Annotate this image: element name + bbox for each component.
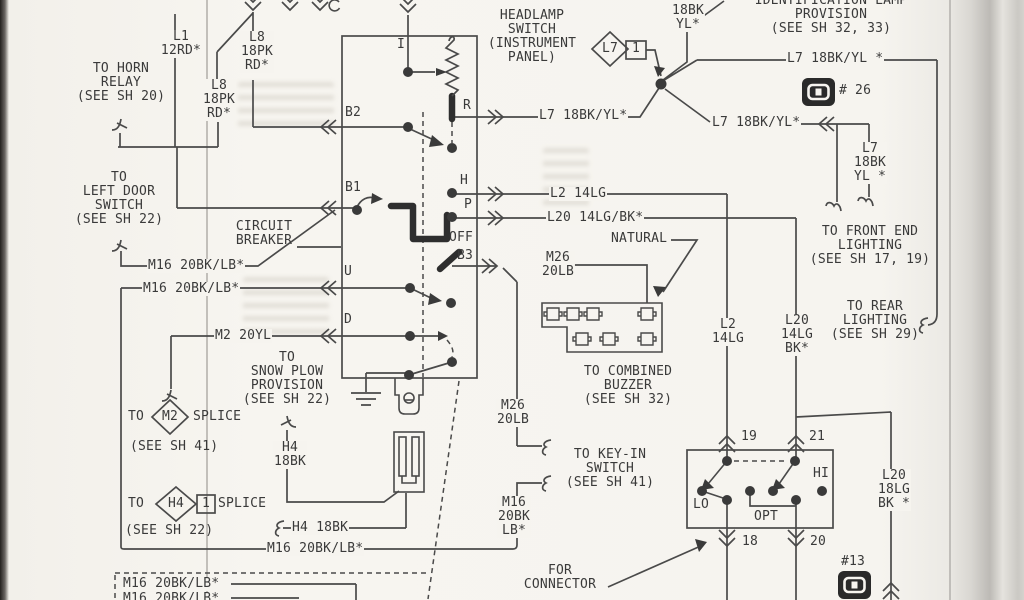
to-word-h4: TO — [128, 497, 144, 511]
terminal-u: U — [344, 265, 352, 279]
wire-label-m16-2: M16 20BK/LB* — [142, 282, 240, 296]
note-identification-lamp: IDENTIFICATION LAMPPROVISION(SEE SH 32, … — [755, 0, 908, 36]
wire-label-l2: L2 14LG — [549, 187, 607, 201]
note-rear-lighting: TO REARLIGHTING(SEE SH 29) — [831, 300, 919, 342]
splice-word-m2: SPLICE — [193, 410, 241, 424]
connector-number-26: # 26 — [839, 84, 871, 98]
arrowheads — [371, 66, 707, 552]
wire-label-l2-v: L214LG — [711, 318, 745, 346]
terminal-b3: B3 — [457, 249, 473, 263]
note-for-connector: FORCONNECTOR — [524, 564, 596, 592]
natural-connector — [542, 303, 662, 352]
note-circuit-breaker: CIRCUITBREAKER — [236, 220, 292, 248]
door-switch-lever — [112, 240, 127, 251]
rear-lighting-hook — [920, 318, 928, 333]
wire-label-l20-b: L2018LGBK * — [877, 469, 911, 511]
clipped-glyph-mark — [329, 0, 339, 11]
terminal-off: OFF — [449, 231, 473, 245]
circuit-breaker-bar — [391, 206, 447, 239]
wire-label-h4-stack: H418BK — [273, 441, 307, 469]
wire-label-l7-v: L718BKYL * — [853, 142, 887, 184]
terminal-b1: B1 — [345, 181, 361, 195]
splice-pin-1-l7: 1 — [632, 42, 640, 56]
ground-symbol — [351, 393, 381, 405]
note-horn-relay: TO HORNRELAY(SEE SH 20) — [77, 62, 165, 104]
scanned-diagram-page: L112RD* TO HORNRELAY(SEE SH 20) L818PKRD… — [0, 0, 1024, 600]
rheostat-zigzag — [446, 37, 458, 96]
to-word-m2: TO — [128, 410, 144, 424]
terminal-p: P — [464, 198, 472, 212]
terminal-i: I — [397, 38, 405, 52]
dimmer-label-hi: HI — [813, 467, 829, 481]
keyin-hook-2 — [543, 476, 551, 491]
wire-label-m2: M2 20YL — [214, 329, 272, 343]
wire-label-l8-a: L818PKRD* — [240, 31, 274, 73]
note-see-sh22: (SEE SH 22) — [125, 524, 213, 538]
terminal-h: H — [460, 174, 468, 188]
pin-number-19: 19 — [741, 430, 757, 444]
wire-label-l7-h: L7 18BK/YL * — [786, 52, 884, 66]
title-headlamp-switch: HEADLAMPSWITCH(INSTRUMENTPANEL) — [488, 9, 576, 65]
plug-connector-a — [395, 378, 423, 414]
terminal-r: R — [463, 99, 471, 113]
plug-connector-b — [394, 432, 424, 492]
splice-word-h4: SPLICE — [218, 497, 266, 511]
dimmer-label-opt: OPT — [754, 510, 778, 524]
pin-number-20: 20 — [810, 535, 826, 549]
wire-label-m26-1: M2620LB — [541, 251, 575, 279]
terminal-b2: B2 — [345, 106, 361, 120]
wire-label-l7-top: L718BKYL* — [671, 0, 705, 32]
wire-label-l20-v: L2014LGBK* — [780, 314, 814, 356]
wire-label-l8-b: L818PKRD* — [202, 79, 236, 121]
horn-relay-lever — [112, 119, 127, 130]
splice-pin-1-h4: 1 — [202, 497, 210, 511]
connector-number-13: #13 — [841, 555, 865, 569]
note-front-end-lighting: TO FRONT ENDLIGHTING(SEE SH 17, 19) — [810, 225, 930, 267]
connector-icon-26 — [802, 78, 835, 106]
wire-label-m26-2: M2620LB — [496, 399, 530, 427]
splice-tag-h4: H4 — [168, 497, 184, 511]
pin-number-21: 21 — [809, 430, 825, 444]
wire-label-h4-line: H4 18BK — [291, 521, 349, 535]
connector-icon-13 — [838, 571, 871, 599]
note-combined-buzzer: TO COMBINEDBUZZER(SEE SH 32) — [584, 365, 672, 407]
note-left-door-switch: TOLEFT DOORSWITCH(SEE SH 22) — [75, 171, 163, 227]
h4-hook — [276, 521, 284, 536]
splice-tag-m2: M2 — [162, 410, 178, 424]
note-see-sh41: (SEE SH 41) — [130, 440, 218, 454]
terminal-d: D — [344, 313, 352, 327]
dimmer-label-lo: LO — [693, 498, 709, 512]
wire-label-m16-4: M16 20BK/LB* — [122, 577, 220, 591]
wire-label-l7-r: L7 18BK/YL* — [538, 109, 628, 123]
snow-plow-lever — [281, 416, 296, 427]
front-lighting-hook-1 — [826, 203, 841, 211]
page-curl-shadow — [948, 0, 1024, 600]
connector-chevrons — [245, 0, 899, 599]
scan-left-edge — [0, 0, 9, 600]
wire-label-l7-c: L7 18BK/YL* — [711, 116, 801, 130]
wire-label-m16-5: M16 20BK/LB* — [122, 592, 220, 600]
wire-label-m16-v: M1620BKLB* — [497, 496, 531, 538]
note-key-in-switch: TO KEY-INSWITCH(SEE SH 41) — [566, 448, 654, 490]
wire-label-l1: L112RD* — [160, 30, 202, 58]
front-lighting-hook-2 — [858, 198, 873, 206]
label-natural: NATURAL — [611, 232, 667, 246]
wire-label-m16-3: M16 20BK/LB* — [266, 542, 364, 556]
keyin-hook-1 — [543, 440, 551, 455]
pin-number-18: 18 — [742, 535, 758, 549]
wire-label-m16-1: M16 20BK/LB* — [147, 259, 245, 273]
dashed-lines — [115, 112, 786, 600]
note-snow-plow: TOSNOW PLOWPROVISION(SEE SH 22) — [243, 351, 331, 407]
wire-label-l20: L20 14LG/BK* — [546, 211, 644, 225]
splice-tag-l7: L7 — [602, 42, 618, 56]
l7-junction-dot — [656, 79, 667, 90]
